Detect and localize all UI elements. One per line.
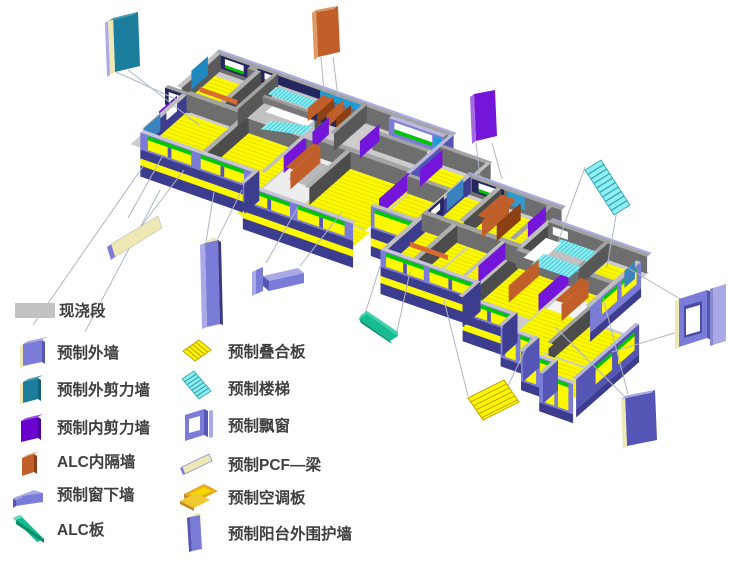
svg-text:预制空调板: 预制空调板 xyxy=(228,488,306,507)
svg-text:预制外墙: 预制外墙 xyxy=(57,343,120,362)
svg-text:ALC内隔墙: ALC内隔墙 xyxy=(57,452,136,471)
svg-text:预制楼梯: 预制楼梯 xyxy=(228,379,291,398)
svg-text:预制阳台外围护墙: 预制阳台外围护墙 xyxy=(228,524,353,543)
svg-text:预制外剪力墙: 预制外剪力墙 xyxy=(57,380,151,399)
svg-text:ALC板: ALC板 xyxy=(57,520,105,539)
svg-text:预制内剪力墙: 预制内剪力墙 xyxy=(57,418,151,437)
svg-text:预制飘窗: 预制飘窗 xyxy=(228,416,290,435)
svg-text:预制PCF—梁: 预制PCF—梁 xyxy=(228,455,322,474)
svg-text:预制窗下墙: 预制窗下墙 xyxy=(57,485,135,504)
svg-text:预制叠合板: 预制叠合板 xyxy=(228,342,306,361)
svg-text:现浇段: 现浇段 xyxy=(59,301,106,320)
